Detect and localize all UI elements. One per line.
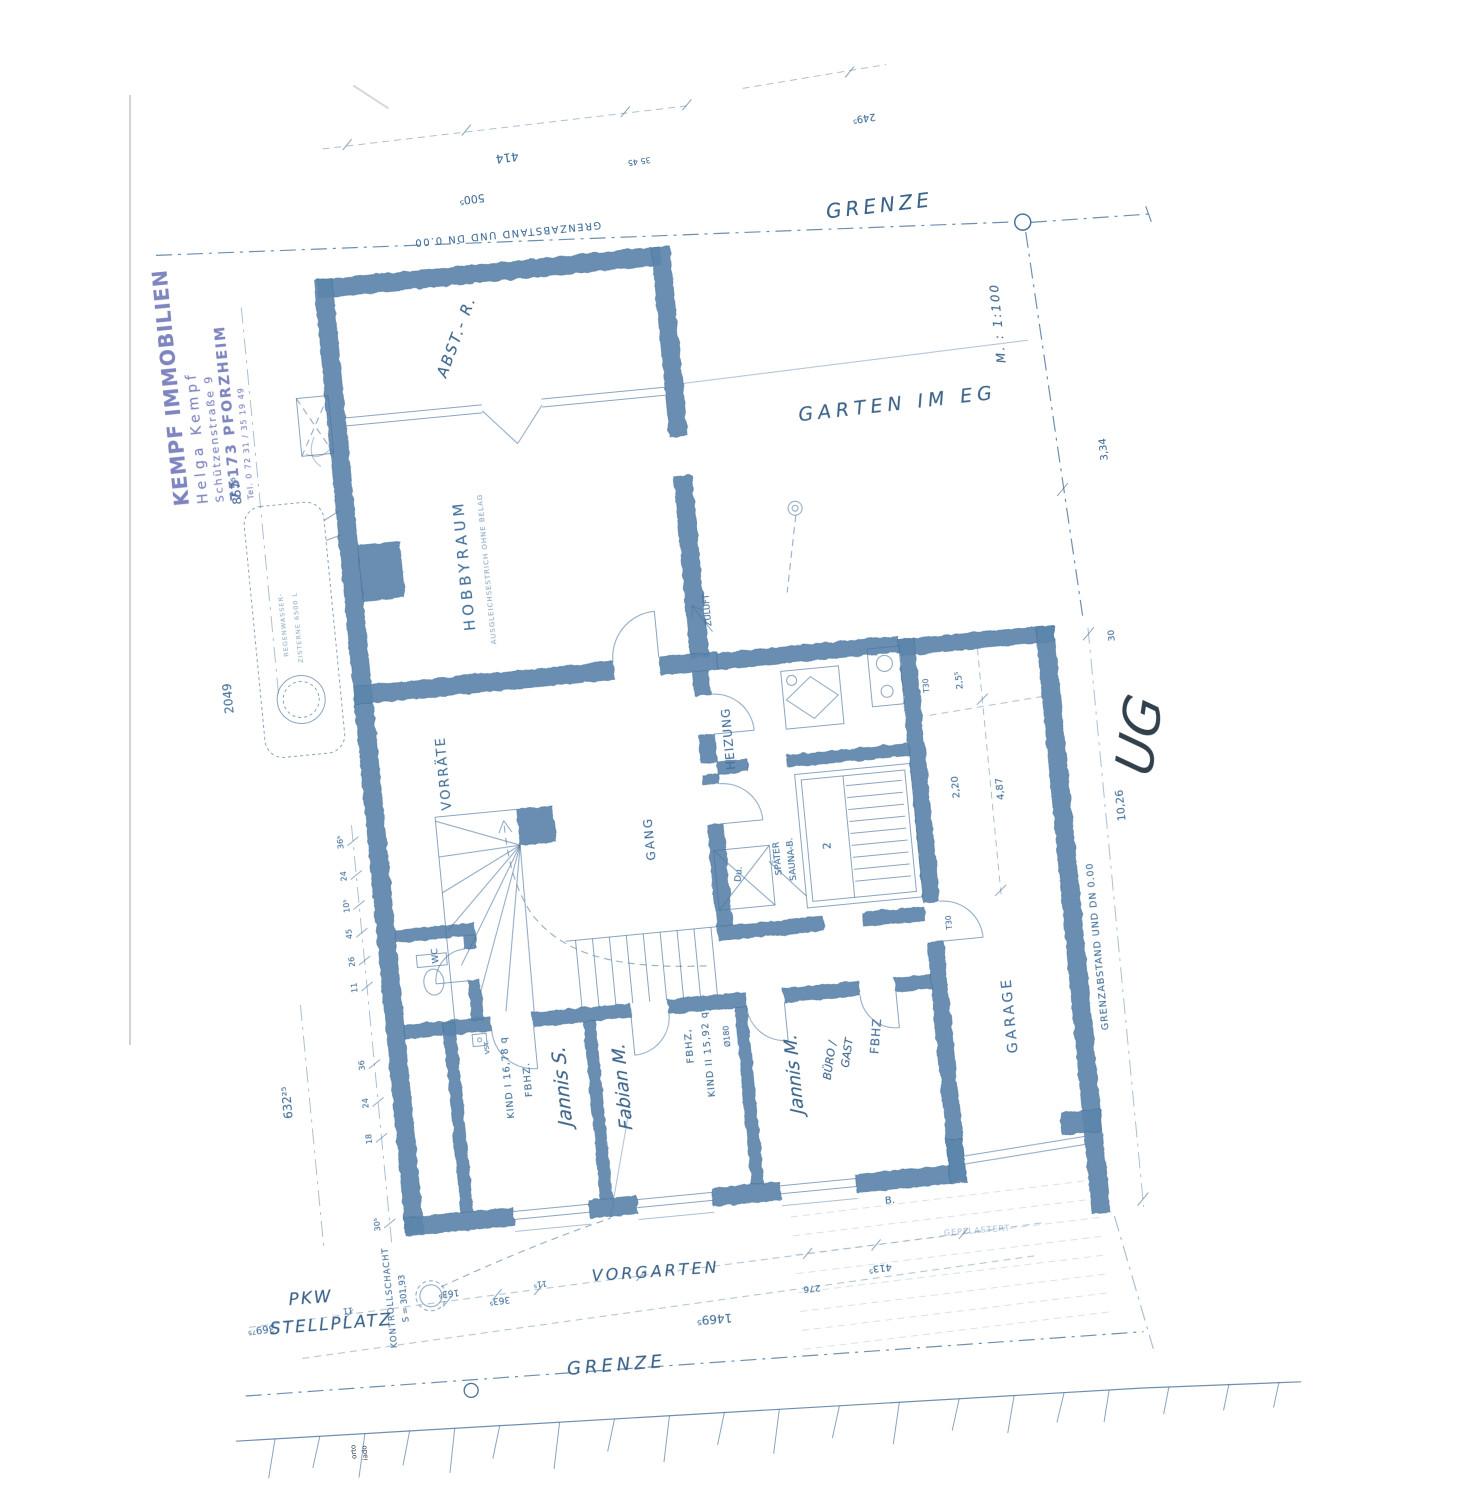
dim-857: 857⁵ <box>229 476 244 505</box>
realtor-stamp-text: KEMPF IMMOBILIEN Helga Kempf Schützenstr… <box>141 196 299 507</box>
dim-chain-9: 30⁵ <box>373 1217 383 1231</box>
dim-vg-3: 363⁵ <box>489 1293 511 1305</box>
fire-door-label-2: T30 <box>945 915 954 930</box>
dim-vg-5: 1469⁵ <box>696 1311 732 1326</box>
scanned-floor-plan-page: KEMPF IMMOBILIEN Helga Kempf Schützenstr… <box>0 0 1470 1499</box>
dim-chain-1: 24 <box>340 871 349 882</box>
dim-garage-2: 4,87 <box>995 777 1008 800</box>
room-wc: WC <box>431 948 442 964</box>
dimension-lines <box>134 49 1156 1363</box>
garage-door <box>963 1136 1086 1164</box>
street-edge <box>236 1339 1303 1499</box>
scan-artifact-text-2: iado <box>361 1445 370 1461</box>
scan-artifact-text-1: orto <box>350 1444 359 1459</box>
b-dot-label: B. <box>884 1196 895 1207</box>
dim-2049: 2049 <box>221 683 236 715</box>
dim-30: 30 <box>1108 629 1118 641</box>
dim-chain-8: 18 <box>365 1133 374 1144</box>
boundary-marker-circle <box>1014 213 1031 230</box>
dim-garage-1: 2,20 <box>950 775 963 798</box>
buero-fbhz: FBHZ <box>868 1017 883 1054</box>
dim-vg-7: 413⁵ <box>868 1260 892 1273</box>
dim-chain-4: 26 <box>348 956 357 967</box>
ug-annotation: UG <box>1108 690 1173 781</box>
fire-door-label-1: T30 <box>922 678 931 693</box>
dim-vg-4: 11⁵ <box>533 1278 547 1288</box>
dim-vg-2: 163⁵ <box>438 1286 460 1298</box>
shower-label: Du. <box>735 866 746 882</box>
garden-drain <box>779 501 811 593</box>
dim-chain-7: 24 <box>361 1098 370 1109</box>
dim-top-249: 249⁵ <box>852 110 876 124</box>
dim-garage-0: 2,5⁵ <box>955 671 966 690</box>
dim-vg-6: 276 <box>803 1282 821 1293</box>
vst-label: VST. <box>483 1040 491 1054</box>
sauna-number: 2 <box>822 842 834 850</box>
dim-vg-1: 11 <box>342 1305 353 1314</box>
pkw-label: PKW <box>288 1289 333 1310</box>
dim-chain-3: 45 <box>345 928 354 939</box>
plan-tilt-wrapper: KEMPF IMMOBILIEN Helga Kempf Schützenstr… <box>0 0 1470 1499</box>
dim-chain-2: 10⁵ <box>342 899 352 913</box>
dim-top-500: 500⁵ <box>459 191 486 206</box>
dim-top-414: 414 <box>495 150 519 165</box>
dim-chain-5: 11 <box>350 982 359 993</box>
dim-vg-0: 369⁷⁵ <box>247 1321 275 1335</box>
boundary-marker-circle-bottom <box>464 1383 479 1398</box>
driveway-hatch <box>790 1179 1110 1349</box>
dim-1026: 10,26 <box>1114 789 1129 821</box>
boundary-lines <box>136 160 1259 1436</box>
dim-632: 632²⁵ <box>280 1086 296 1120</box>
dim-chain-0: 36⁵ <box>336 835 346 849</box>
dim-chain-6: 36 <box>358 1060 367 1071</box>
dim-334: 3,34 <box>1099 438 1112 461</box>
windows <box>513 1179 857 1232</box>
